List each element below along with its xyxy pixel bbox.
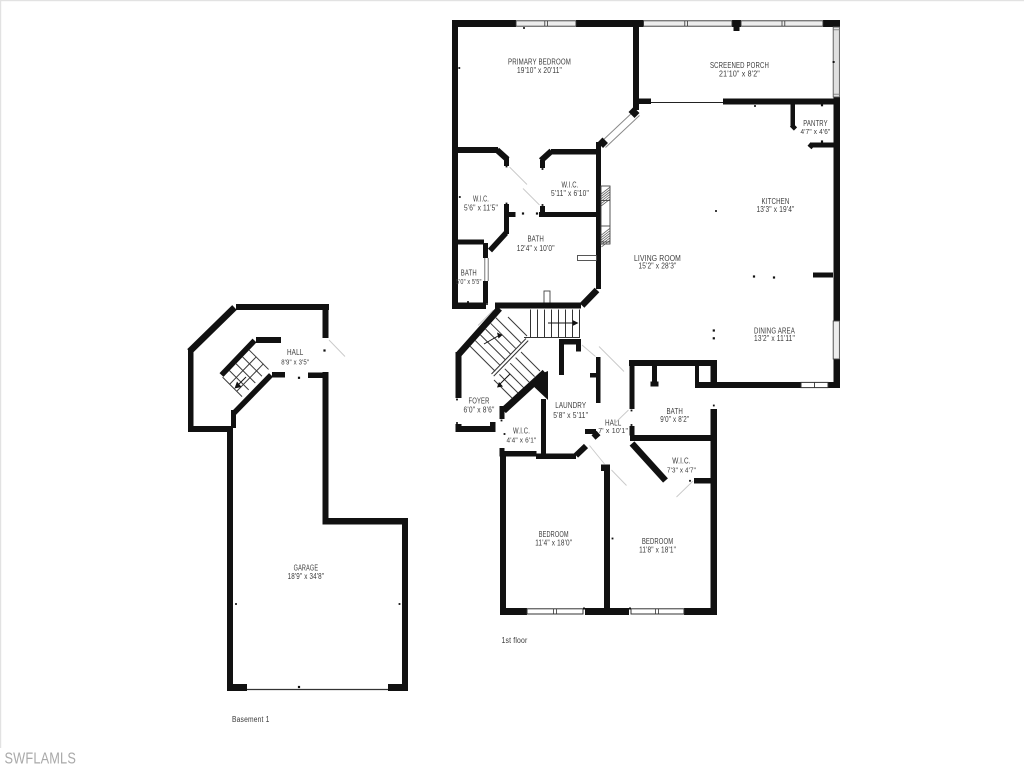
svg-text:1st floor: 1st floor (502, 636, 528, 645)
svg-text:5'0" x 5'5": 5'0" x 5'5" (456, 277, 482, 286)
svg-text:FOYER: FOYER (469, 397, 490, 406)
svg-text:18'9" x 34'8": 18'9" x 34'8" (288, 572, 325, 581)
svg-text:HALL: HALL (287, 348, 304, 357)
svg-text:19'10" x 20'11": 19'10" x 20'11" (517, 66, 562, 75)
svg-text:Basement 1: Basement 1 (232, 715, 270, 724)
svg-text:BATH: BATH (527, 235, 544, 244)
svg-text:13'2" x 11'11": 13'2" x 11'11" (754, 334, 795, 343)
svg-text:11'4" x 18'0": 11'4" x 18'0" (535, 539, 572, 548)
svg-text:11'8" x 18'1": 11'8" x 18'1" (639, 546, 676, 555)
svg-text:5'11" x 6'10": 5'11" x 6'10" (551, 189, 589, 198)
svg-text:15'2" x 28'3": 15'2" x 28'3" (639, 262, 677, 271)
svg-text:4'4" x 6'1": 4'4" x 6'1" (507, 436, 537, 445)
svg-text:LAUNDRY: LAUNDRY (555, 401, 586, 410)
svg-text:5'6" x 11'5": 5'6" x 11'5" (464, 204, 498, 213)
svg-text:9'0" x 8'2": 9'0" x 8'2" (660, 415, 689, 424)
svg-text:5'8" x 5'11": 5'8" x 5'11" (553, 411, 588, 420)
svg-text:6'0" x 8'6": 6'0" x 8'6" (464, 406, 495, 415)
svg-text:8'9" x 3'5": 8'9" x 3'5" (281, 358, 309, 367)
svg-text:W.I.C.: W.I.C. (513, 427, 530, 436)
svg-text:7'3" x 4'7": 7'3" x 4'7" (667, 466, 696, 475)
svg-text:12'4" x 10'0": 12'4" x 10'0" (517, 244, 555, 253)
svg-text:13'3" x 19'4": 13'3" x 19'4" (757, 205, 795, 214)
svg-text:21'10" x 8'2": 21'10" x 8'2" (719, 70, 760, 79)
svg-text:W.I.C.: W.I.C. (672, 457, 691, 466)
svg-text:W.I.C.: W.I.C. (473, 195, 489, 204)
svg-text:4'7" x 4'6": 4'7" x 4'6" (801, 127, 831, 136)
svg-text:SWFLAMLS: SWFLAMLS (5, 751, 77, 768)
svg-text:7' x 10'1": 7' x 10'1" (598, 426, 628, 435)
